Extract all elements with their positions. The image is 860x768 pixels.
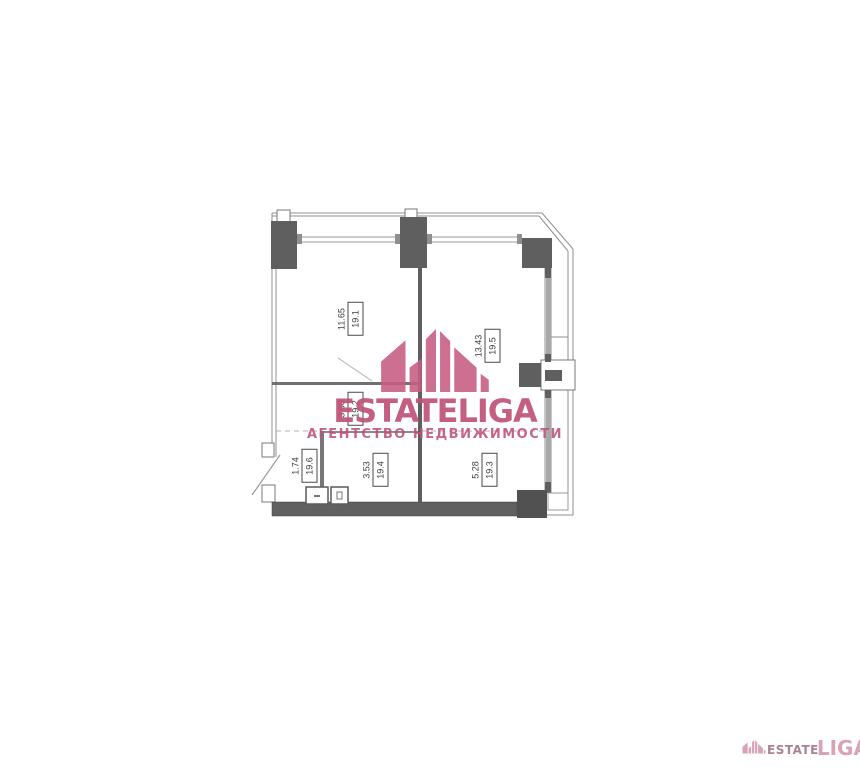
bathroom-fixtures [306,487,348,504]
room-id-box: 19.2 [348,392,364,426]
room-area-value: 3.53 [362,461,372,479]
corner-logo: ESTATE LIGA [742,739,860,757]
corner-logo-estate-text: ESTATE [767,743,819,757]
floorplan: 11.65 19.1 13.43 19.5 3.60 19.2 1.74 19.… [250,205,580,520]
room-area-value: 13.43 [474,335,484,358]
toilet-icon [331,487,348,504]
room-label-19-4: 3.53 19.4 [362,453,389,487]
room-id-box: 19.4 [373,453,389,487]
corner-logo-liga-text: LIGA [817,740,860,757]
room-label-19-1: 11.65 19.1 [337,302,364,336]
room-label-19-5: 13.43 19.5 [474,329,501,363]
room-label-19-2: 3.60 19.2 [337,392,364,426]
skyline-buildings-icon [742,739,766,754]
room-area-value: 3.60 [337,400,347,418]
room-id-box: 19.6 [302,449,318,483]
room-label-19-6: 1.74 19.6 [291,449,318,483]
room-area-value: 5.28 [471,461,481,479]
screenshot-canvas: 11.65 19.1 13.43 19.5 3.60 19.2 1.74 19.… [0,0,860,768]
room-id-box: 19.1 [348,302,364,336]
room-id-box: 19.3 [482,453,498,487]
room-area-value: 1.74 [291,457,301,475]
room-area-value: 11.65 [337,308,347,330]
room-id-box: 19.5 [485,329,501,363]
room-label-19-3: 5.28 19.3 [471,453,498,487]
